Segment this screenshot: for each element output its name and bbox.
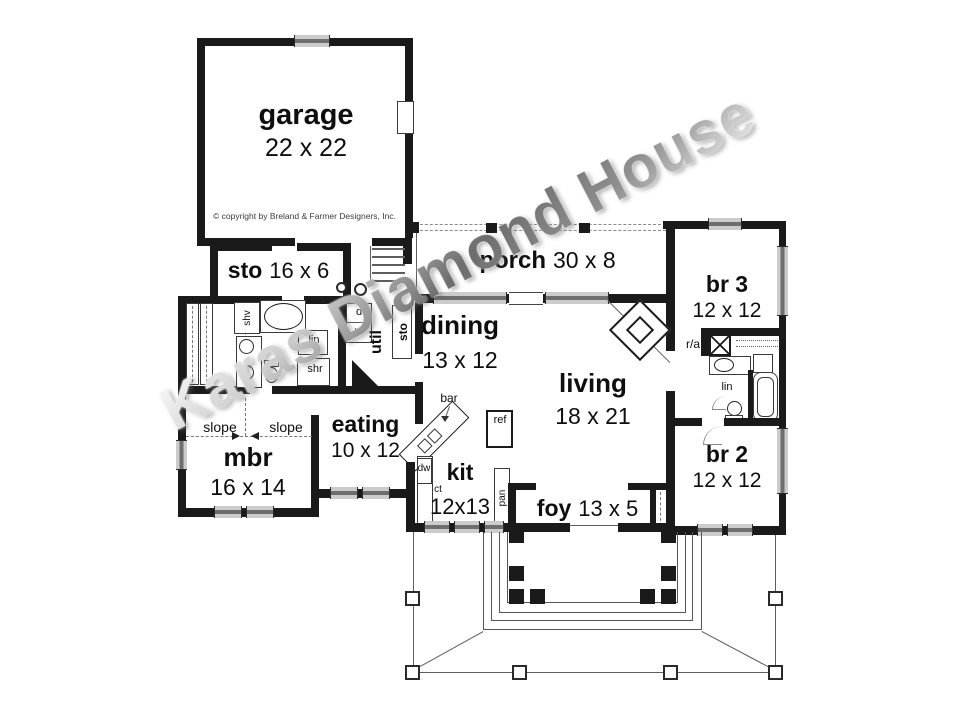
- line: [420, 631, 483, 667]
- porch-door: [509, 292, 543, 305]
- wall: [508, 483, 536, 490]
- porch-post: [407, 222, 419, 233]
- living-window: [545, 292, 609, 304]
- porch-column: [509, 530, 524, 543]
- eating-label: eating 10 x 12: [313, 412, 418, 463]
- bar-sink: [427, 428, 443, 444]
- porch-column: [663, 665, 678, 680]
- floor-plan: garage 22 x 22 © copyright by Breland & …: [0, 0, 960, 720]
- dining-dims: 13 x 12: [405, 348, 515, 372]
- hall-bath-sink: [714, 358, 734, 372]
- porch-column: [768, 665, 783, 680]
- hall-closet-shelf: [753, 354, 773, 373]
- wall: [666, 418, 702, 426]
- sto-dims: 16 x 6: [269, 258, 329, 283]
- hall-toilet: [727, 401, 742, 416]
- dotted-line: [736, 346, 778, 347]
- dw-label: dw: [412, 464, 436, 474]
- sto-name: sto: [228, 257, 263, 283]
- mbr-dims: 16 x 14: [183, 475, 313, 499]
- porch-column: [512, 665, 527, 680]
- br2-name: br 2: [668, 442, 786, 466]
- eating-name: eating: [313, 412, 418, 436]
- line: [413, 672, 776, 673]
- front-door-threshold: [570, 525, 618, 526]
- door-arc: [712, 396, 726, 410]
- porch-column: [405, 591, 420, 606]
- dashed-line: [660, 492, 661, 526]
- sto-label: sto16 x 6: [206, 258, 351, 282]
- pan-label: pan: [498, 481, 508, 515]
- porch-column: [661, 530, 676, 543]
- porch-column: [530, 589, 545, 604]
- eating-window: [362, 487, 390, 499]
- kit-window: [454, 521, 480, 533]
- dotted-line: [736, 340, 778, 341]
- porch-column: [768, 591, 783, 606]
- bar-arrow-head: [441, 416, 449, 422]
- porch-column: [661, 589, 676, 604]
- wall: [650, 488, 656, 528]
- garage-label: garage 22 x 22: [196, 100, 416, 161]
- br3-name: br 3: [668, 272, 786, 296]
- stair-tread: [372, 248, 405, 250]
- foy-name: foy: [537, 495, 572, 521]
- porch-column: [661, 566, 676, 581]
- living-label: living 18 x 21: [528, 370, 658, 428]
- foy-dims: 13 x 5: [578, 496, 638, 521]
- floor-plan-page: garage 22 x 22 © copyright by Breland & …: [0, 0, 960, 720]
- wall: [628, 483, 668, 490]
- garage-vent-window: [294, 35, 330, 47]
- br3-vent-window: [708, 218, 742, 230]
- wall: [724, 418, 786, 426]
- slope-right-label: slope: [262, 420, 310, 434]
- garage-dims: 22 x 22: [196, 135, 416, 162]
- kit-window: [424, 521, 450, 533]
- living-dims: 18 x 21: [528, 404, 658, 428]
- ra-label: r/a: [680, 338, 706, 350]
- return-air-box: [709, 334, 731, 356]
- wall: [210, 243, 272, 251]
- mbr-window: [214, 506, 242, 518]
- br3-label: br 3 12 x 12: [668, 272, 786, 323]
- slope-arrow: [251, 432, 259, 440]
- bar-sink: [417, 438, 433, 454]
- porch-column: [509, 566, 524, 581]
- bar-label: bar: [432, 392, 466, 404]
- porch-column: [640, 589, 655, 604]
- lin-hall-label: lin: [714, 382, 740, 393]
- mbr-label: mbr 16 x 14: [183, 444, 313, 499]
- br2-dims: 12 x 12: [668, 470, 786, 492]
- ref-label: ref: [488, 415, 512, 426]
- copyright-text: © copyright by Breland & Farmer Designer…: [213, 211, 396, 221]
- eating-window: [330, 487, 358, 499]
- wall: [372, 238, 405, 246]
- hall-tub-inner: [757, 377, 774, 417]
- kit-dims: 12x13: [414, 495, 506, 518]
- mbr-name: mbr: [183, 444, 313, 472]
- ct-label: ct: [428, 485, 448, 495]
- porch-column: [405, 665, 420, 680]
- mbr-window: [246, 506, 274, 518]
- br2-window: [727, 524, 753, 536]
- foy-label: foy13 x 5: [525, 496, 650, 520]
- wall: [516, 523, 570, 532]
- br2-label: br 2 12 x 12: [668, 442, 786, 493]
- line: [702, 631, 769, 667]
- br3-dims: 12 x 12: [668, 300, 786, 322]
- garage-name: garage: [196, 100, 416, 131]
- eating-dims: 10 x 12: [313, 440, 418, 462]
- living-name: living: [528, 370, 658, 398]
- porch-column: [509, 589, 524, 604]
